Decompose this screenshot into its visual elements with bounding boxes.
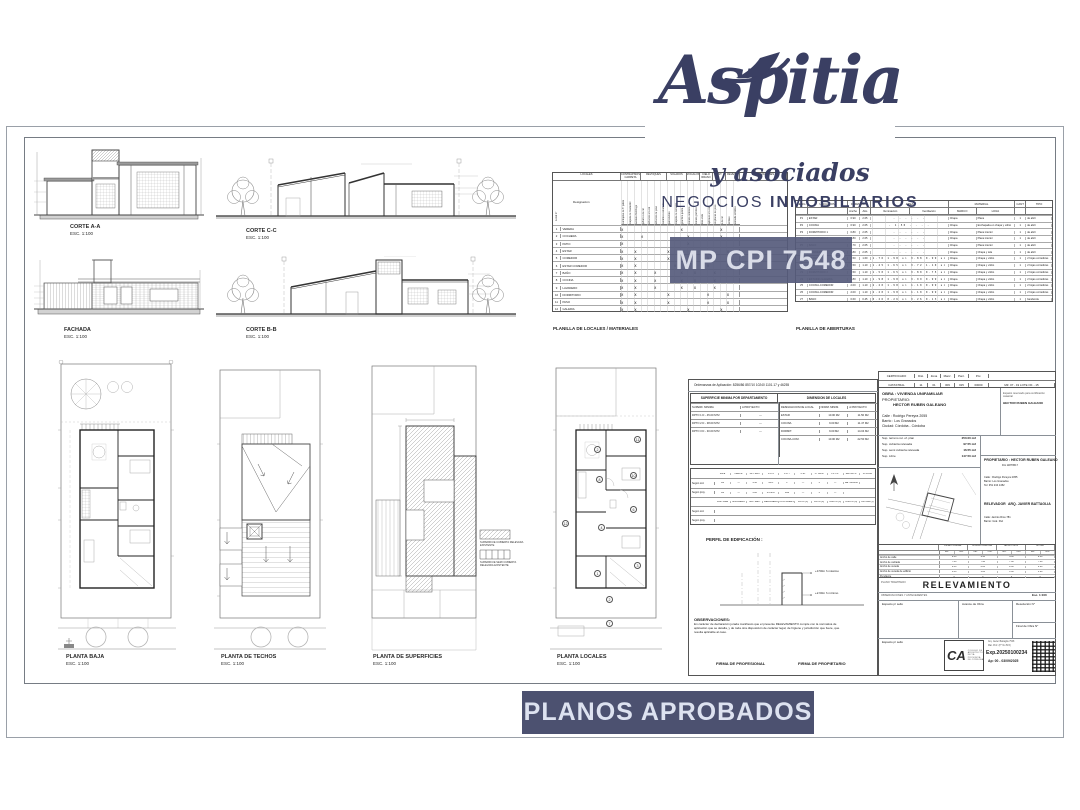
local-number: 1	[594, 570, 601, 577]
planta-locales-drawing	[550, 360, 662, 652]
relevador-name: ARQ. JAVIER BATTAGLIA	[1008, 502, 1051, 506]
planta-superficies-drawing	[368, 360, 518, 652]
indicadores-row: Zona PERFIL ALT. MAX F.O.S F.O.T C.M. N°…	[691, 469, 875, 478]
logo-background	[645, 121, 895, 144]
superficie-legend-2: SUPERFICIE SEMI CUBIERTARELEVADA EXISTEN…	[480, 561, 524, 567]
superficie-minima-table: SUPERFICIE MINIMA POR DEPARTAMENTO DIMEN…	[690, 393, 876, 465]
ca-text: COLEGIO DEARQUITECTOS DE LA PROVINCIADE …	[968, 650, 985, 662]
license-badge: MP CPI 7548	[670, 237, 852, 283]
local-number: 2	[594, 446, 601, 453]
espacio-sello-1: Espacio p/ sello	[882, 603, 903, 607]
ca-logo: CA	[947, 648, 966, 663]
aberturas-row: P3 DORMITORIO 1 0.80 2.05 - - - - - - Ch…	[796, 228, 1052, 235]
planta-baja-drawing	[58, 360, 176, 652]
locales-row: 10 DORMITORIO x x x x x	[553, 291, 787, 298]
locales-row: 1 VEREDA x x x	[553, 225, 787, 232]
corte-bb-drawing	[216, 256, 516, 324]
planta-locales-container: 21110861243127	[550, 360, 662, 652]
planta-superficies-caption: PLANTA DE SUPERFICIES ESC. 1:100	[373, 654, 442, 666]
brand-tagline: y asociados	[640, 158, 940, 187]
sup-min-sub: SUPERF. MINIMA A PROYECTO	[691, 403, 779, 411]
anchos-rows: Ancho de calle 9.40 9.40 9.40 9.40 Ancho…	[879, 555, 1055, 579]
indicadores-row: Según ord. R2 — 4.50 60% 1 — 1 — Bal. 62…	[691, 478, 875, 487]
anchos-row: Pendiente 0 0 0 0	[879, 574, 1055, 579]
propietario-dni: Dni 11879517	[1002, 464, 1018, 467]
corte-bb-caption: CORTE B-B ESC. 1:100	[246, 327, 277, 339]
ordenanzas-line: Ordenanzas de Aplicación: 8256/86 857/10…	[694, 383, 789, 387]
stamp-line-2: Mat. Prof. (P° No 515)	[988, 645, 1011, 648]
qr-code	[1032, 641, 1055, 672]
colegio-arquitectos-stamp: CA COLEGIO DEARQUITECTOS DE LA PROVINCIA…	[944, 640, 984, 671]
stamp-line-1: Arq. Javier Battaglia 7548	[988, 641, 1014, 644]
local-number: 4	[598, 524, 605, 531]
corte-cc-drawing	[216, 158, 516, 226]
propietario-tel: Tel: 351 234 1452	[984, 484, 1005, 487]
planta-baja-caption: PLANTA BAJA ESC. 1:100	[66, 654, 104, 666]
brand-subtitle-prefix: NEGOCIOS	[661, 194, 763, 211]
expediente-number: Exp.20250100234	[986, 650, 1027, 656]
site-map	[884, 469, 976, 541]
certificado-row: CERTIFICADO Dist. Zona Manz. Parc. P.H.	[879, 372, 1055, 380]
superficies-list: Sup. terreno rel. of. plan 250.00 m2 Sup…	[882, 437, 976, 461]
superficie-legend-1: SUPERFICIE CUBIERTA RELEVADAEXISTENTE	[480, 541, 524, 547]
locales-corner-label: Local n°	[555, 187, 563, 221]
perfil-annotation-2: +2.60m h mínimo	[815, 592, 838, 596]
relevador-label: RELEVADOR	[984, 502, 1006, 506]
locales-row: 9 LAVADERO x x x x x x	[553, 283, 787, 290]
indicadores-row: Según ord.	[691, 506, 875, 515]
avance-obra-label: Avance de Obra	[962, 603, 984, 607]
local-number: 2	[606, 596, 613, 603]
indicadores-row: Según proy. R2 — 3.00 45.52% 1+E — 1 —	[691, 488, 875, 497]
planta-techos-caption: PLANTA DE TECHOS ESC. 1:100	[221, 654, 276, 666]
dim-locales-sub: DESIGNACION DE LOCAL NORM. MINIM. A PROY…	[779, 403, 877, 411]
antecedentes-label: OBSERVACIONES Y ANTECEDENTES	[881, 594, 927, 597]
brand-subtitle: NEGOCIOS INMOBILIARIOS	[640, 194, 940, 212]
local-number: 12	[562, 520, 569, 527]
corte-cc-caption: CORTE C-C ESC. 1:100	[246, 228, 277, 240]
relevamiento-title: RELEVAMIENTO	[878, 580, 1056, 590]
locales-row: 12 GALERIA x x x x	[553, 305, 787, 312]
relevador-calle: Calle: Jacinto Ríos 781	[984, 516, 1011, 519]
propietario-barrio: Barrio: Los Granados	[984, 480, 1009, 483]
local-number: 8	[596, 476, 603, 483]
perfil-annotation-1: +3.50m h máximo	[815, 570, 839, 574]
aprobacion-date: Ap: 00 - 03/09/2025	[988, 659, 1018, 663]
locales-row: 11 PASO x x x x x	[553, 298, 787, 305]
propietario-name: HECTOR RUBEN GALEANO	[893, 402, 946, 407]
aberturas-row: V7 BAÑO 0.60 0.45 0.26 0.26 si 0.26 0.13…	[796, 295, 1052, 302]
local-number: 11	[634, 436, 641, 443]
obra-barrio: Barrio : Los Granados	[882, 419, 916, 423]
planta-techos-drawing	[214, 360, 326, 652]
reserved-name: HECTOR RUBEN GALEANO	[1003, 402, 1043, 406]
perfil-label: PERFIL DE EDIFICACIÓN :	[706, 537, 763, 543]
obra-calle: Calle : Rodrigo Pereyra 2055	[882, 414, 927, 418]
relevador-barrio: Barrio: Gral. Paz	[984, 520, 1003, 523]
anchos-table: ESTADO PREDIALRODRIGO PEREYRAJACINTO RIO…	[878, 544, 1056, 578]
certificado-catastral-table: CERTIFICADO Dist. Zona Manz. Parc. P.H. …	[878, 371, 1056, 388]
locales-designacion-label: Designación	[573, 201, 590, 205]
corte-aa-drawing	[34, 144, 204, 224]
approved-banner: PLANOS APROBADOS	[522, 691, 814, 734]
fachada-caption: FACHADA ESC. 1:100	[64, 327, 91, 339]
observaciones-text: En carácter de declaración jurada manifi…	[694, 623, 874, 634]
aberturas-row: P1 ESTAR 0.90 2.05 - - - - - - Chapa Pla…	[796, 215, 1052, 222]
corte-aa-caption: CORTE A-A ESC. 1:100	[70, 224, 100, 236]
planilla-locales-title: PLANILLA DE LOCALES / MATERIALES	[553, 326, 638, 332]
sup-min-rows: DPTO 1 D - 45.00 MT2 — DPTO 2 D - 38.00 …	[691, 411, 779, 435]
obra-ciudad: Ciudad: Córdoba - Córdoba	[882, 424, 925, 428]
anchos-groups: ESTADO PREDIALRODRIGO PEREYRAJACINTO RIO…	[939, 545, 1055, 550]
certificado-row: CATASTRAL 11 01 009 015 00000 MZ. 07 - 1…	[879, 380, 1055, 388]
espacio-sello-2: Espacio p/ sello	[882, 641, 903, 645]
dim-locales-rows: ESTAR 10.00 M2 11.50 M2 COCINA 9.00 M2 1…	[779, 411, 877, 457]
hat-icon	[722, 50, 792, 86]
local-number: 10	[630, 472, 637, 479]
firma-profesional-label: FIRMA DE PROFESIONAL	[716, 661, 765, 666]
perfil-diagram	[712, 543, 872, 613]
propietario-info-title: PROPIETARIO : HECTOR RUBEN GALEANO	[984, 458, 1058, 462]
local-number: 6	[630, 506, 637, 513]
aberturas-row: P2 COCINA 0.90 2.05 - 1.50 - - - - Chapa…	[796, 222, 1052, 229]
brand-subtitle-bold: INMOBILIARIOS	[770, 194, 919, 211]
local-number: 3	[634, 562, 641, 569]
firma-propietario-label: FIRMA DE PROPIETARIO	[798, 661, 846, 666]
escala-label: Esc. 1:100	[1032, 594, 1047, 598]
local-number: 7	[606, 620, 613, 627]
obra-line: OBRA : VIVIENDA UNIFAMILIAR	[882, 391, 943, 396]
resolucion-label: Resolución N°	[1016, 603, 1035, 607]
propietario-calle: Calle : Rodrigo Pereyra 2055	[984, 476, 1017, 479]
indicadores-row: PAR. AIRE ESCALERA SUP. MEC. MEDIANERA C…	[691, 497, 875, 506]
indicadores-row: Según proy.	[691, 515, 875, 524]
planilla-aberturas-title: PLANILLA DE ABERTURAS	[796, 326, 855, 332]
planta-locales-caption: PLANTA LOCALES ESC. 1:100	[557, 654, 607, 666]
indicadores-table: Zona PERFIL ALT. MAX F.O.S F.O.T C.M. N°…	[690, 468, 876, 525]
fachada-drawing	[34, 250, 204, 320]
superficie-row: Sup. Libre 147.50 m2	[882, 455, 976, 461]
reserved-space-note: Espacio reservado para certificación cat…	[1003, 392, 1053, 398]
aberturas-row: V6 COCINA-COMEDOR 2.00 1.10 2.20 1.98 si…	[796, 289, 1052, 296]
final-obra-label: Final de Obra N°	[1016, 625, 1038, 629]
